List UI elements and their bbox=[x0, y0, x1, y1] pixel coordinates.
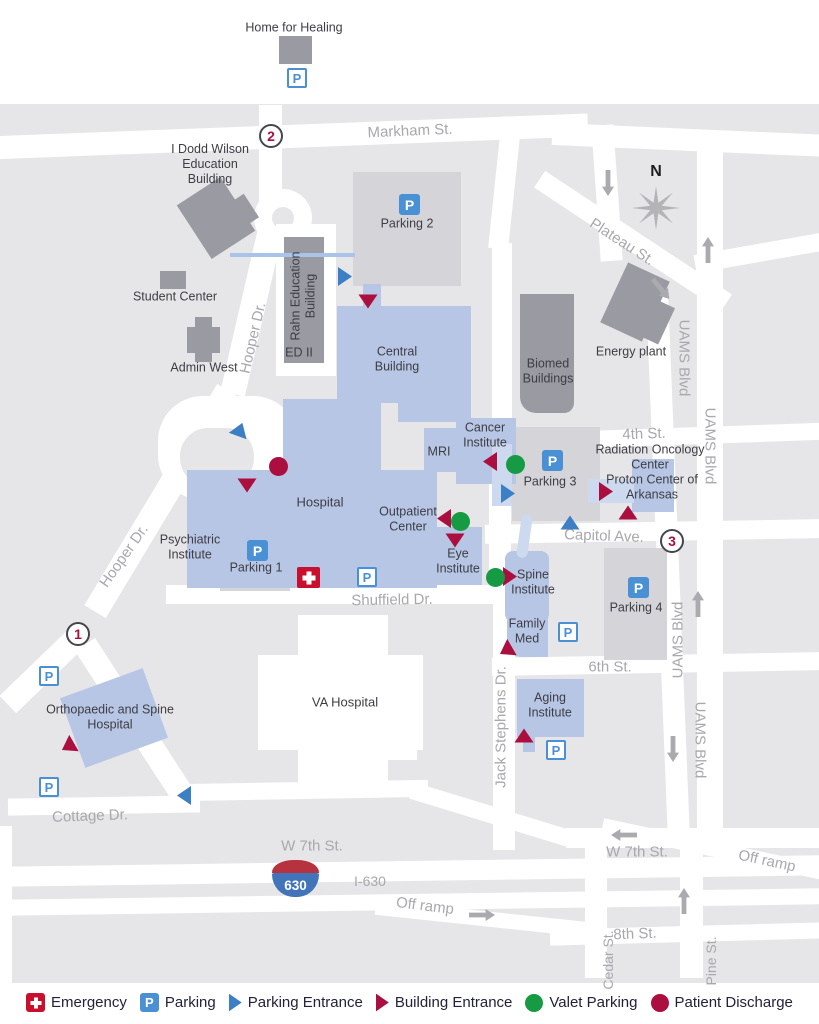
street-label-pine: Pine St. bbox=[703, 936, 719, 985]
compass-north-label: N bbox=[650, 163, 662, 181]
label-parking-1: Parking 1 bbox=[230, 561, 283, 576]
patient-discharge-marker bbox=[269, 457, 288, 476]
parking-icon: P bbox=[39, 666, 59, 686]
route-marker-2: 2 bbox=[259, 124, 283, 148]
map-legend: Emergency P Parking Parking Entrance Bui… bbox=[26, 993, 793, 1012]
street-label-6th: 6th St. bbox=[588, 659, 631, 676]
patient-discharge-icon bbox=[651, 994, 669, 1012]
emergency-icon bbox=[26, 993, 45, 1012]
shield-top bbox=[272, 860, 319, 873]
legend-label: Valet Parking bbox=[549, 994, 637, 1011]
label-parking-2: Parking 2 bbox=[381, 217, 434, 232]
label-energy-plant: Energy plant bbox=[596, 345, 666, 360]
interstate-shield-icon: 630 bbox=[272, 860, 319, 897]
street-label-uams-1: UAMS Blvd bbox=[676, 320, 693, 397]
road-campus-center-north bbox=[492, 243, 512, 419]
label-parking-3: Parking 3 bbox=[524, 475, 577, 490]
legend-label: Emergency bbox=[51, 994, 127, 1011]
parking-icon: P bbox=[558, 622, 578, 642]
valet-parking-icon bbox=[525, 994, 543, 1012]
label-cancer: Cancer Institute bbox=[454, 420, 516, 450]
label-psychiatric: Psychiatric Institute bbox=[151, 532, 229, 562]
building-admin-west bbox=[195, 317, 212, 362]
label-eye: Eye Institute bbox=[428, 546, 488, 576]
label-ed-ii: ED II bbox=[285, 346, 313, 361]
legend-label: Building Entrance bbox=[395, 994, 513, 1011]
parking-icon: P bbox=[287, 68, 307, 88]
label-orthopaedic: Orthopaedic and Spine Hospital bbox=[38, 702, 183, 732]
campus-map: Markham St. Plateau St. Hooper Dr. Hoope… bbox=[0, 0, 819, 1024]
parking-icon: P bbox=[542, 450, 563, 471]
street-label-8th: 8th St. bbox=[613, 925, 657, 944]
street-label-w7th-2: W 7th St. bbox=[606, 844, 668, 861]
emergency-icon bbox=[297, 567, 320, 588]
street-label-i630: I-630 bbox=[354, 873, 386, 889]
parking-entrance-icon bbox=[229, 994, 242, 1012]
legend-label: Patient Discharge bbox=[675, 994, 793, 1011]
legend-item-emergency: Emergency bbox=[26, 993, 127, 1012]
legend-label: Parking bbox=[165, 994, 216, 1011]
label-family-med: Family Med bbox=[502, 616, 552, 646]
label-i-dodd-wilson: I Dodd Wilson Education Building bbox=[163, 142, 258, 186]
label-aging: Aging Institute bbox=[519, 690, 581, 720]
parking-icon: P bbox=[247, 540, 268, 561]
label-mri: MRI bbox=[428, 445, 451, 460]
label-student-center: Student Center bbox=[133, 290, 217, 305]
parking-icon: P bbox=[399, 194, 420, 215]
parking-icon: P bbox=[546, 740, 566, 760]
label-parking-4: Parking 4 bbox=[610, 601, 663, 616]
street-label-uams-4: UAMS Blvd bbox=[692, 702, 709, 779]
label-rahn: Rahn Education Building bbox=[288, 240, 318, 352]
legend-item-valet-parking: Valet Parking bbox=[525, 994, 637, 1012]
building-home-for-healing bbox=[279, 36, 312, 64]
street-label-cedar: Cedar St. bbox=[600, 930, 616, 989]
label-spine: Spine Institute bbox=[503, 567, 563, 597]
legend-item-patient-discharge: Patient Discharge bbox=[651, 994, 793, 1012]
street-label-4th: 4th St. bbox=[622, 425, 666, 444]
legend-item-parking: P Parking bbox=[140, 993, 216, 1012]
street-label-cottage: Cottage Dr. bbox=[52, 806, 128, 826]
label-admin-west: Admin West bbox=[170, 361, 237, 376]
route-marker-1: 1 bbox=[66, 622, 90, 646]
route-marker-3: 3 bbox=[660, 529, 684, 553]
legend-label: Parking Entrance bbox=[248, 994, 363, 1011]
parking-icon: P bbox=[39, 777, 59, 797]
valet-parking-marker bbox=[506, 455, 525, 474]
street-label-w7th-1: W 7th St. bbox=[281, 838, 343, 855]
label-biomed: Biomed Buildings bbox=[513, 356, 583, 386]
building-biomed bbox=[520, 294, 574, 413]
legend-item-parking-entrance: Parking Entrance bbox=[229, 994, 363, 1012]
label-central: Central Building bbox=[366, 344, 428, 374]
legend-item-building-entrance: Building Entrance bbox=[376, 994, 513, 1012]
street-label-shuffield: Shuffield Dr. bbox=[351, 591, 433, 609]
valet-parking-marker bbox=[486, 568, 505, 587]
street-label-uams-3: UAMS Blvd bbox=[670, 602, 687, 679]
valet-parking-marker bbox=[451, 512, 470, 531]
label-home-for-healing: Home for Healing bbox=[245, 21, 342, 36]
shield-number: 630 bbox=[272, 873, 319, 897]
road-left-edge bbox=[0, 826, 12, 984]
street-label-jack-stephens: Jack Stephens Dr. bbox=[493, 666, 510, 788]
parking-icon: P bbox=[357, 567, 377, 587]
building-student-center bbox=[160, 271, 186, 289]
building-entrance-icon bbox=[376, 994, 389, 1012]
parking-icon: P bbox=[628, 577, 649, 598]
label-hospital: Hospital bbox=[297, 494, 344, 509]
label-proton: Proton Center of Arkansas bbox=[596, 472, 708, 502]
label-outpatient: Outpatient Center bbox=[371, 504, 445, 534]
label-radiation-oncology: Radiation Oncology Center bbox=[588, 442, 713, 472]
parking-icon: P bbox=[140, 993, 159, 1012]
label-va-hospital: VA Hospital bbox=[312, 694, 378, 709]
